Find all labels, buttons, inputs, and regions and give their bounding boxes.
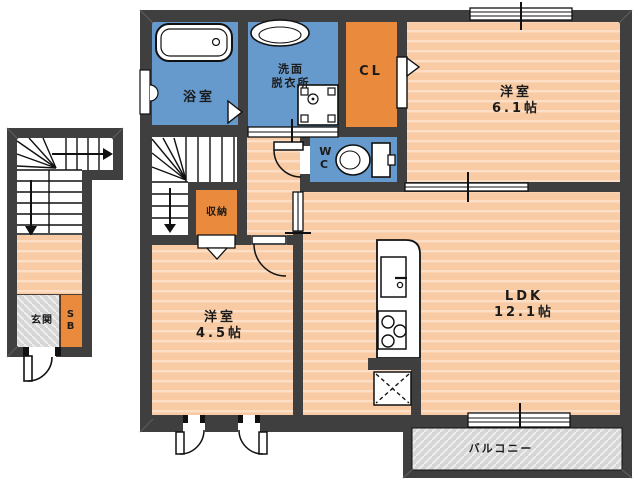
entrance-corridor-floor (17, 235, 82, 295)
floor-plan-drawing (0, 0, 640, 480)
entrance-door-icon (23, 347, 61, 381)
shoe-box (60, 295, 82, 347)
entrance-floor (17, 295, 60, 347)
refrigerator-icon (374, 372, 411, 405)
floor-plan: 浴室 洗面 脱衣所 CL 洋室 6.1帖 WC 収納 洋室 4.5帖 LDK 1… (0, 0, 640, 480)
balcony (403, 428, 632, 478)
bedroom-west-floor (152, 245, 293, 415)
balcony-floor (412, 428, 622, 470)
storage-floor (196, 190, 237, 235)
sink-icon (251, 20, 309, 46)
ldk-floor (303, 192, 620, 415)
bathtub-icon (156, 24, 232, 61)
closet-floor (346, 22, 397, 127)
washing-machine-icon (298, 85, 338, 125)
entrance-stair-block (7, 128, 123, 381)
bedroom-east-floor (407, 22, 620, 182)
hallway-floor-south (247, 192, 293, 235)
main-building (140, 2, 632, 478)
kitchen-counter-icon (377, 240, 420, 358)
